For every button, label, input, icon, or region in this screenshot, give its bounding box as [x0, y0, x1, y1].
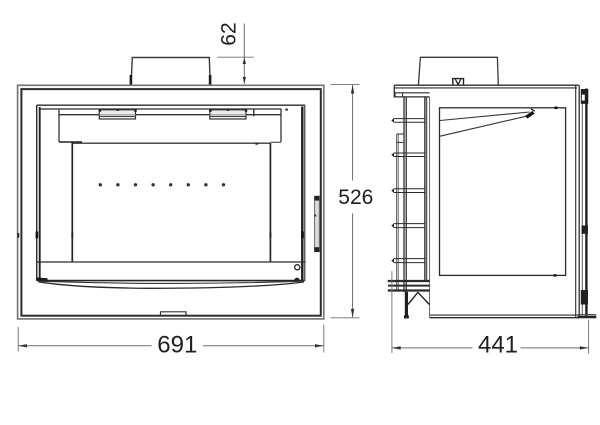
svg-text:62: 62	[218, 22, 241, 45]
svg-text:441: 441	[478, 332, 518, 359]
svg-text:691: 691	[157, 332, 197, 359]
svg-text:526: 526	[338, 186, 373, 209]
